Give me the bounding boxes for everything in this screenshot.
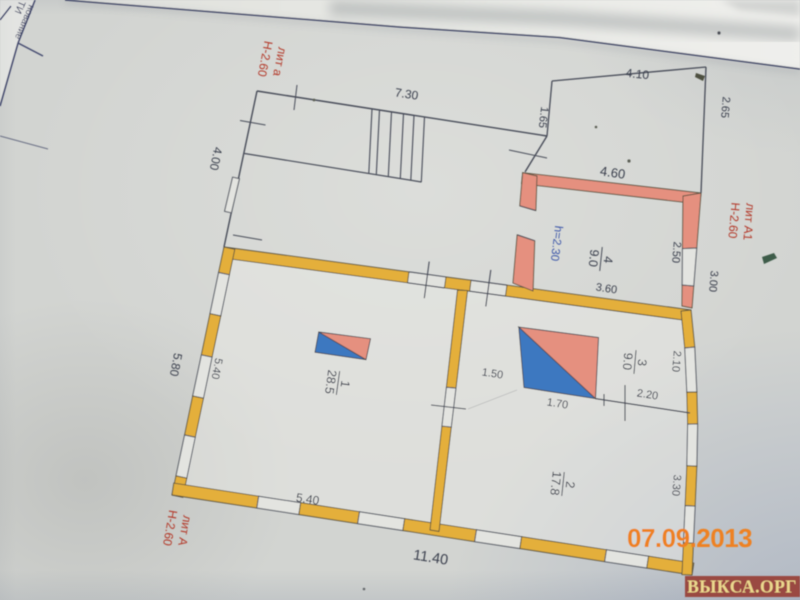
svg-text:4.60: 4.60 <box>599 163 626 182</box>
svg-text:4.00: 4.00 <box>207 146 225 172</box>
svg-text:17.8: 17.8 <box>547 470 563 496</box>
svg-text:11.40: 11.40 <box>412 547 449 568</box>
svg-text:7.30: 7.30 <box>394 85 419 102</box>
svg-text:9.0: 9.0 <box>620 352 635 371</box>
svg-text:3.00: 3.00 <box>706 270 720 292</box>
svg-text:2.65: 2.65 <box>718 96 732 118</box>
svg-text:h=2.30: h=2.30 <box>548 225 564 262</box>
svg-text:2.10: 2.10 <box>669 350 683 372</box>
svg-text:1.65: 1.65 <box>536 106 551 129</box>
svg-text:Н-2.60: Н-2.60 <box>725 202 742 239</box>
svg-text:5.80: 5.80 <box>167 352 185 378</box>
svg-text:4: 4 <box>601 256 616 264</box>
svg-text:3: 3 <box>635 359 650 367</box>
svg-text:2.50: 2.50 <box>669 241 683 263</box>
svg-text:9.0: 9.0 <box>586 249 602 268</box>
svg-text:4.10: 4.10 <box>625 66 650 82</box>
svg-text:07.09.2013: 07.09.2013 <box>627 523 752 553</box>
svg-text:3.30: 3.30 <box>669 474 683 496</box>
svg-text:ВЫКСА.ОРГ: ВЫКСА.ОРГ <box>687 577 797 597</box>
svg-text:3.60: 3.60 <box>595 282 618 297</box>
